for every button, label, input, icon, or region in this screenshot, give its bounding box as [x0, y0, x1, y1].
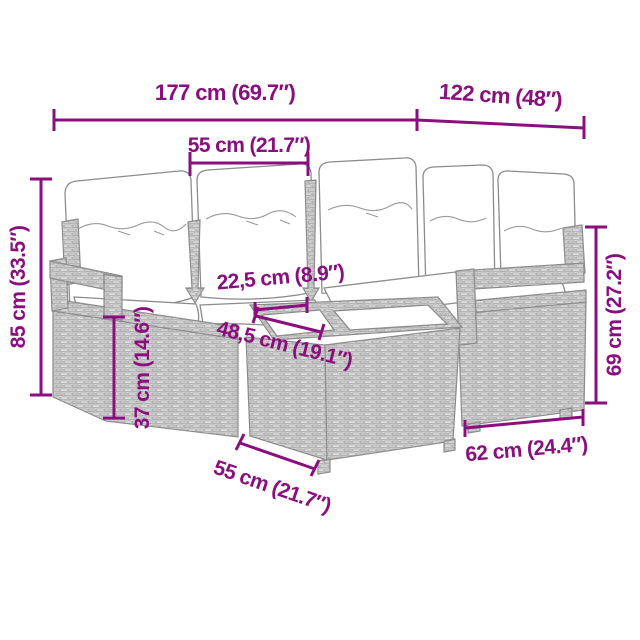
dimension-line-total-depth	[417, 116, 584, 139]
dimension-armrest-height: 69 cm (27.2″)	[585, 227, 626, 403]
dimension-line-total-width	[54, 109, 417, 131]
diagram-canvas: 177 cm (69.7″) 122 cm (48″) 55 cm (21.7″…	[0, 0, 640, 640]
product-dimension-diagram: 177 cm (69.7″) 122 cm (48″) 55 cm (21.7″…	[0, 0, 640, 640]
dimension-label-armrest-height: 69 cm (27.2″)	[603, 254, 626, 377]
dimension-label-total-width: 177 cm (69.7″)	[155, 80, 296, 105]
right-base-front	[458, 302, 586, 426]
dimension-label-total-depth: 122 cm (48″)	[438, 79, 563, 113]
dimension-overall-height: 85 cm (33.5″)	[7, 179, 52, 395]
dimension-total-depth: 122 cm (48″)	[417, 79, 584, 139]
left-armrest-post	[104, 274, 122, 320]
dimension-label-module-depth: 62 cm (24.4″)	[464, 433, 588, 467]
dimension-label-seat-width: 55 cm (21.7″)	[188, 134, 311, 157]
right-base	[458, 290, 586, 433]
dimension-label-overall-height: 85 cm (33.5″)	[7, 226, 30, 349]
dimension-label-seat-height: 37 cm (14.6″)	[131, 307, 154, 430]
table-foot-right	[444, 439, 455, 452]
dimension-total-width: 177 cm (69.7″)	[54, 80, 417, 131]
table	[246, 297, 462, 474]
back-pillow-1	[65, 171, 195, 310]
dimension-line-overall-height	[30, 179, 52, 395]
back-pillow-5	[498, 171, 576, 278]
